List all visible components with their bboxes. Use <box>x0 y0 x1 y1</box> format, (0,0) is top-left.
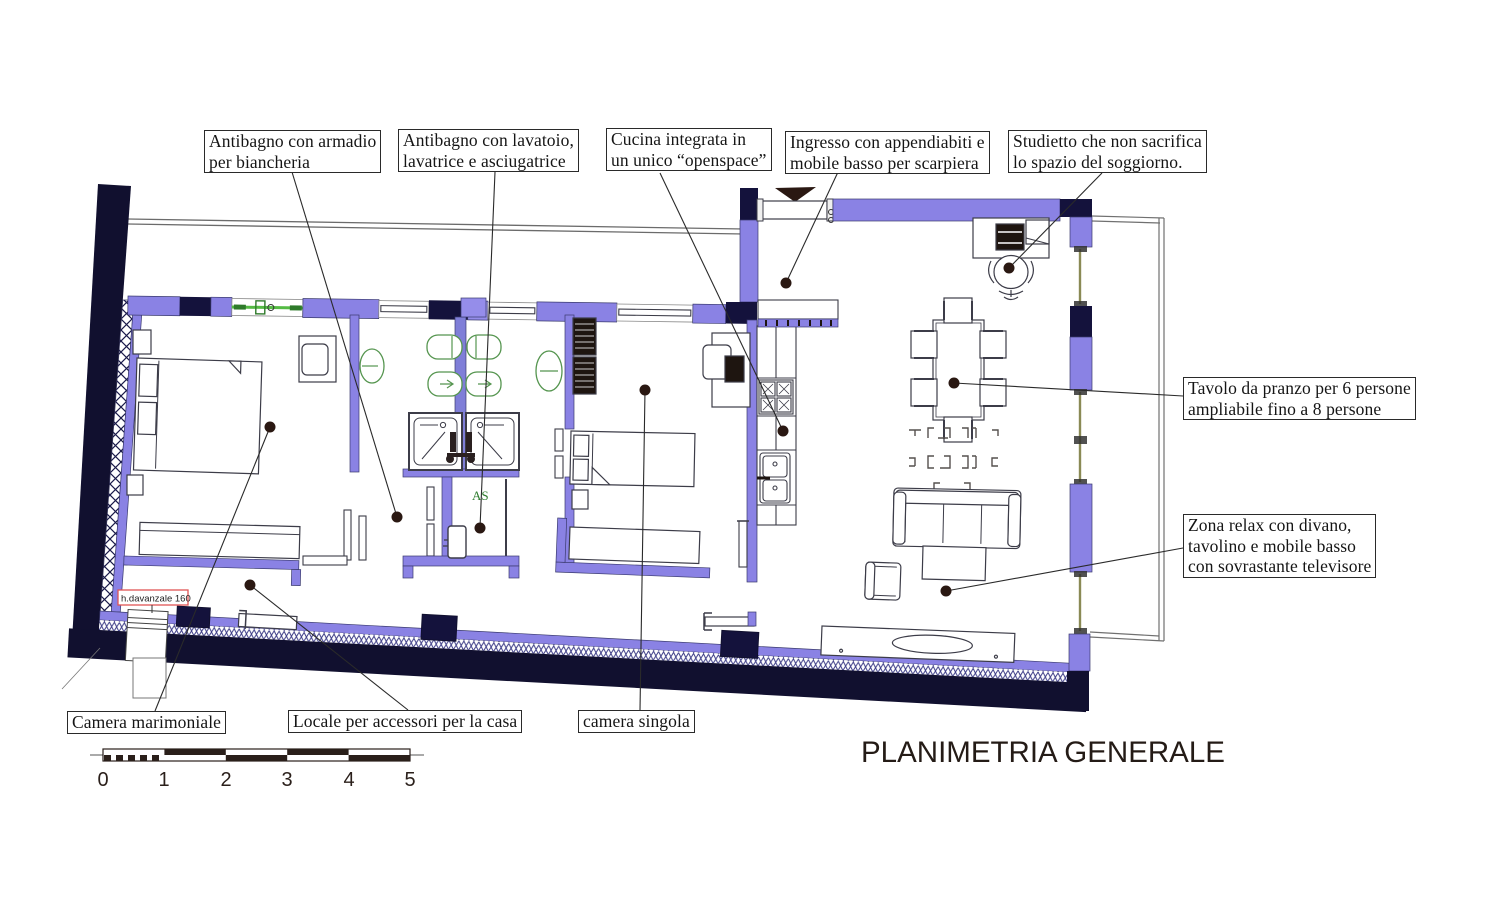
svg-text:5: 5 <box>404 769 415 791</box>
svg-text:1: 1 <box>158 769 169 791</box>
svg-text:3: 3 <box>281 769 292 791</box>
svg-text:h.davanzale 160: h.davanzale 160 <box>121 594 191 605</box>
svg-text:2: 2 <box>220 769 231 791</box>
svg-text:AS: AS <box>472 488 489 503</box>
svg-text:4: 4 <box>343 769 354 791</box>
svg-text:0: 0 <box>97 769 108 791</box>
